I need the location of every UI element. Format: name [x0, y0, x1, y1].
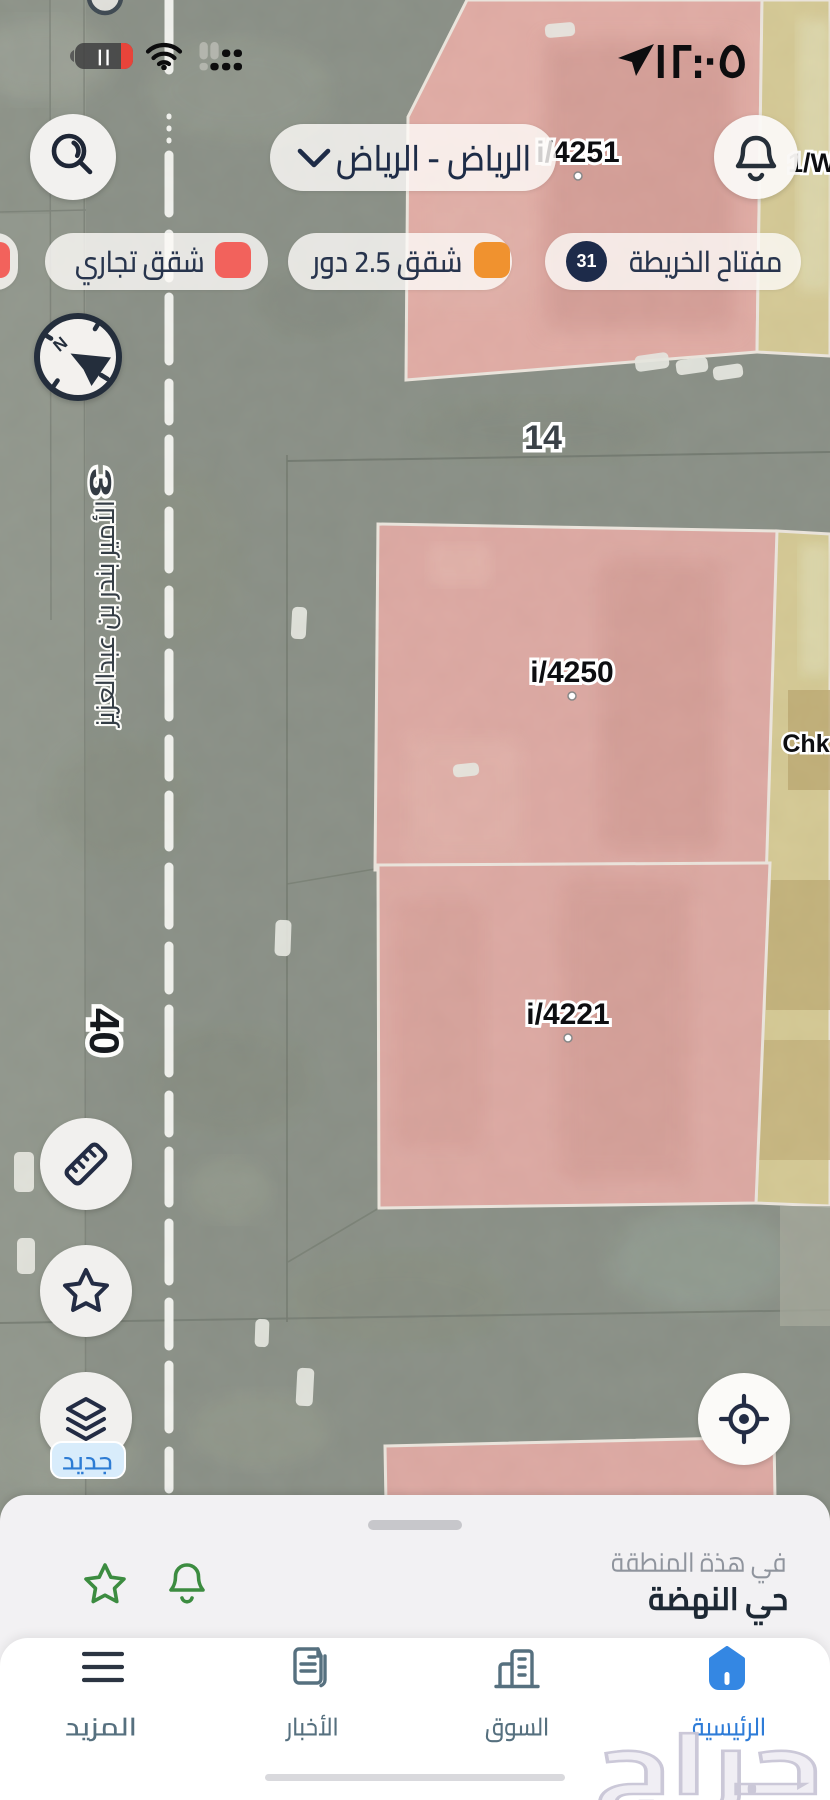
- svg-text:i/4250: i/4250: [530, 656, 613, 689]
- svg-text:14: 14: [524, 419, 562, 457]
- svg-text:N: N: [50, 333, 72, 355]
- svg-text:40: 40: [81, 1008, 128, 1055]
- svg-text:Chk: Chk: [782, 730, 829, 758]
- svg-text:3: 3: [83, 468, 117, 497]
- svg-text:i/4221: i/4221: [526, 998, 609, 1031]
